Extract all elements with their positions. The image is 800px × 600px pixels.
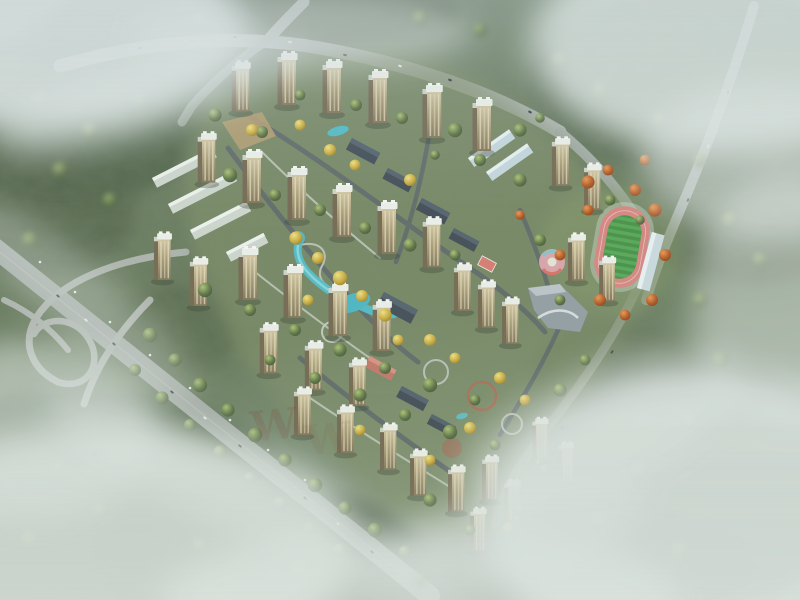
aerial-rendering: W W [0, 0, 800, 600]
color-grade-overlay [0, 0, 800, 600]
rendering-canvas: W W [0, 0, 800, 600]
mist-layer [0, 0, 800, 600]
